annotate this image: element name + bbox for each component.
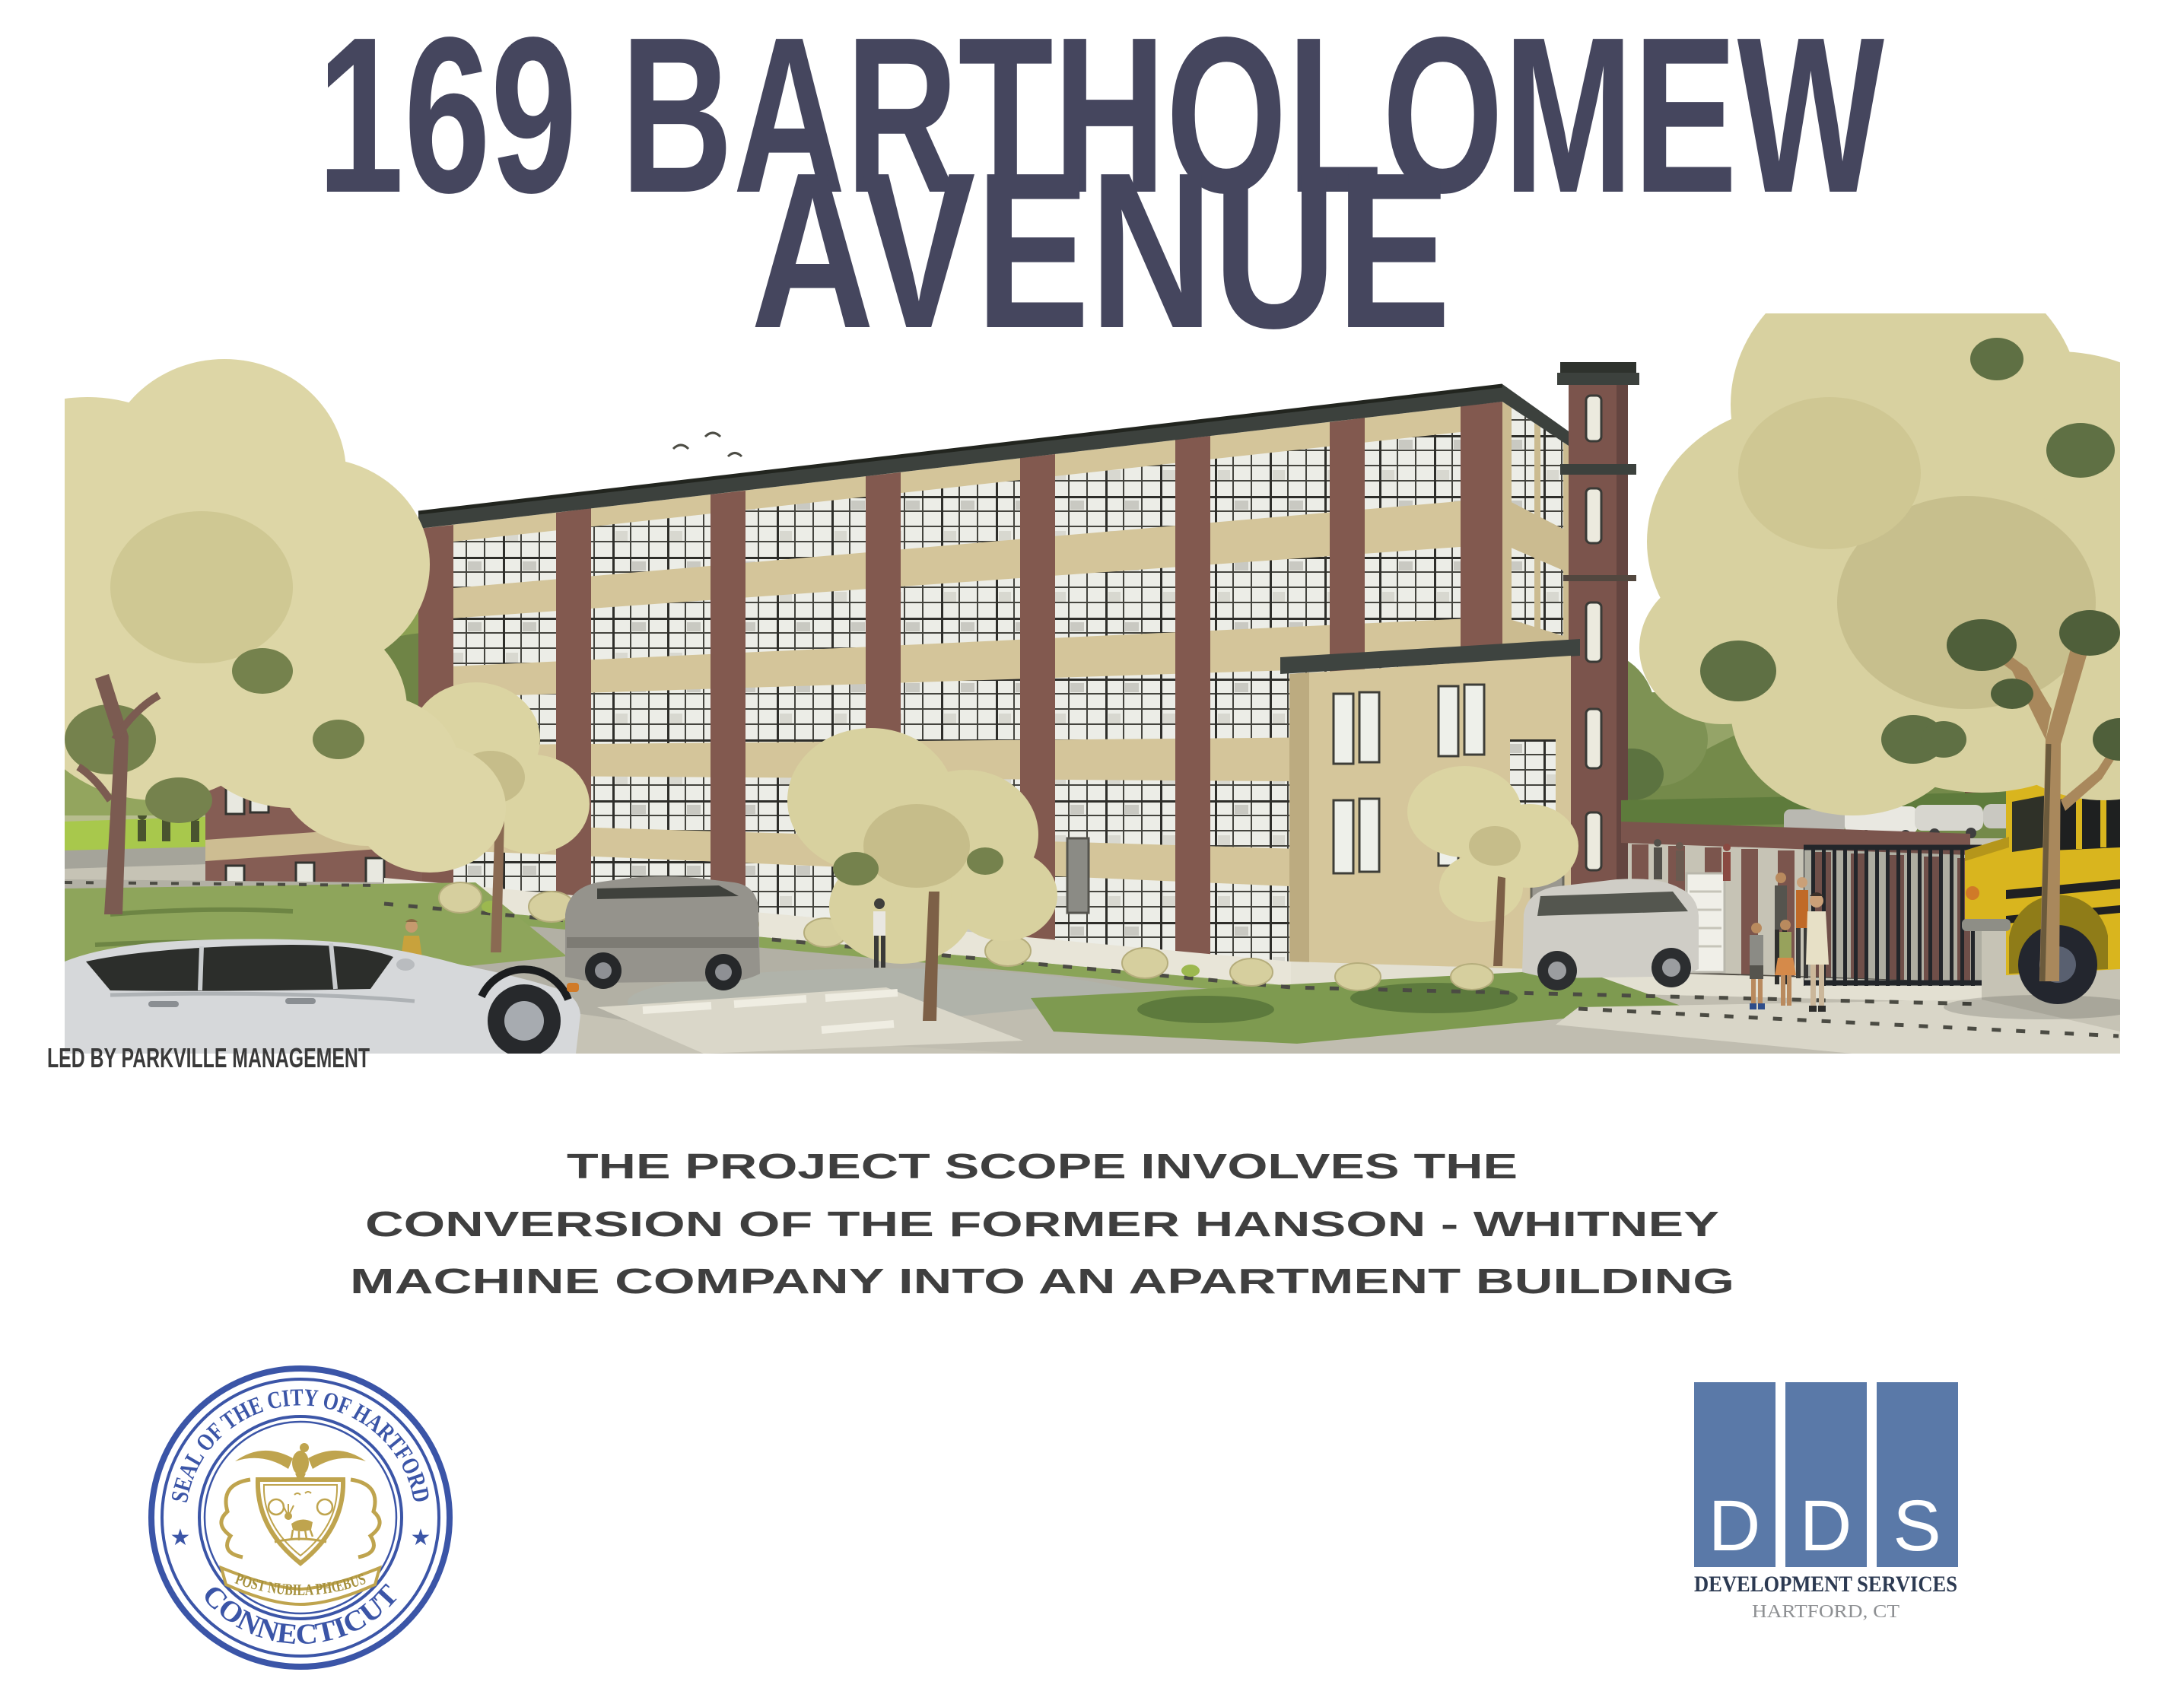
minivan-silver xyxy=(1522,879,1699,990)
seal-star-right: ★ xyxy=(411,1525,431,1550)
project-line-3: MACHINE COMPANY INTO AN APARTMENT BUILDI… xyxy=(350,1261,1734,1301)
iron-fence xyxy=(1804,846,1982,986)
flyer-page: 169 BARTHOLOMEW AVENUE xyxy=(0,0,2184,1688)
page-title: 169 BARTHOLOMEW AVENUE xyxy=(317,0,1886,374)
suv-gray xyxy=(565,876,760,990)
flyer-canvas: 169 BARTHOLOMEW AVENUE xyxy=(0,0,2184,1688)
dds-letter-2: D xyxy=(1800,1486,1852,1566)
dds-letter-1: D xyxy=(1709,1486,1761,1566)
dds-logo: D D S DEVELOPMENT SERVICES HARTFORD, CT xyxy=(1694,1382,1958,1622)
seal-star-left: ★ xyxy=(170,1525,191,1550)
project-line-1: THE PROJECT SCOPE INVOLVES THE xyxy=(567,1146,1518,1186)
seal-emblem: POST NUBILA PHŒBUS xyxy=(221,1443,380,1604)
project-line-2: CONVERSION OF THE FORMER HANSON - WHITNE… xyxy=(365,1204,1719,1244)
rendering-caption: LED BY PARKVILLE MANAGEMENT xyxy=(47,1042,370,1073)
dds-line-2: HARTFORD, CT xyxy=(1752,1602,1899,1622)
hartford-seal: SEAL OF THE CITY OF HARTFORD CONNECTICUT… xyxy=(151,1369,450,1667)
entry-door xyxy=(1067,838,1089,913)
birds xyxy=(673,433,742,456)
dds-line-1: DEVELOPMENT SERVICES xyxy=(1694,1572,1957,1597)
project-description: THE PROJECT SCOPE INVOLVES THE CONVERSIO… xyxy=(350,1146,1734,1301)
dds-letter-3: S xyxy=(1893,1486,1941,1566)
title-line-2: AVENUE xyxy=(751,126,1451,374)
